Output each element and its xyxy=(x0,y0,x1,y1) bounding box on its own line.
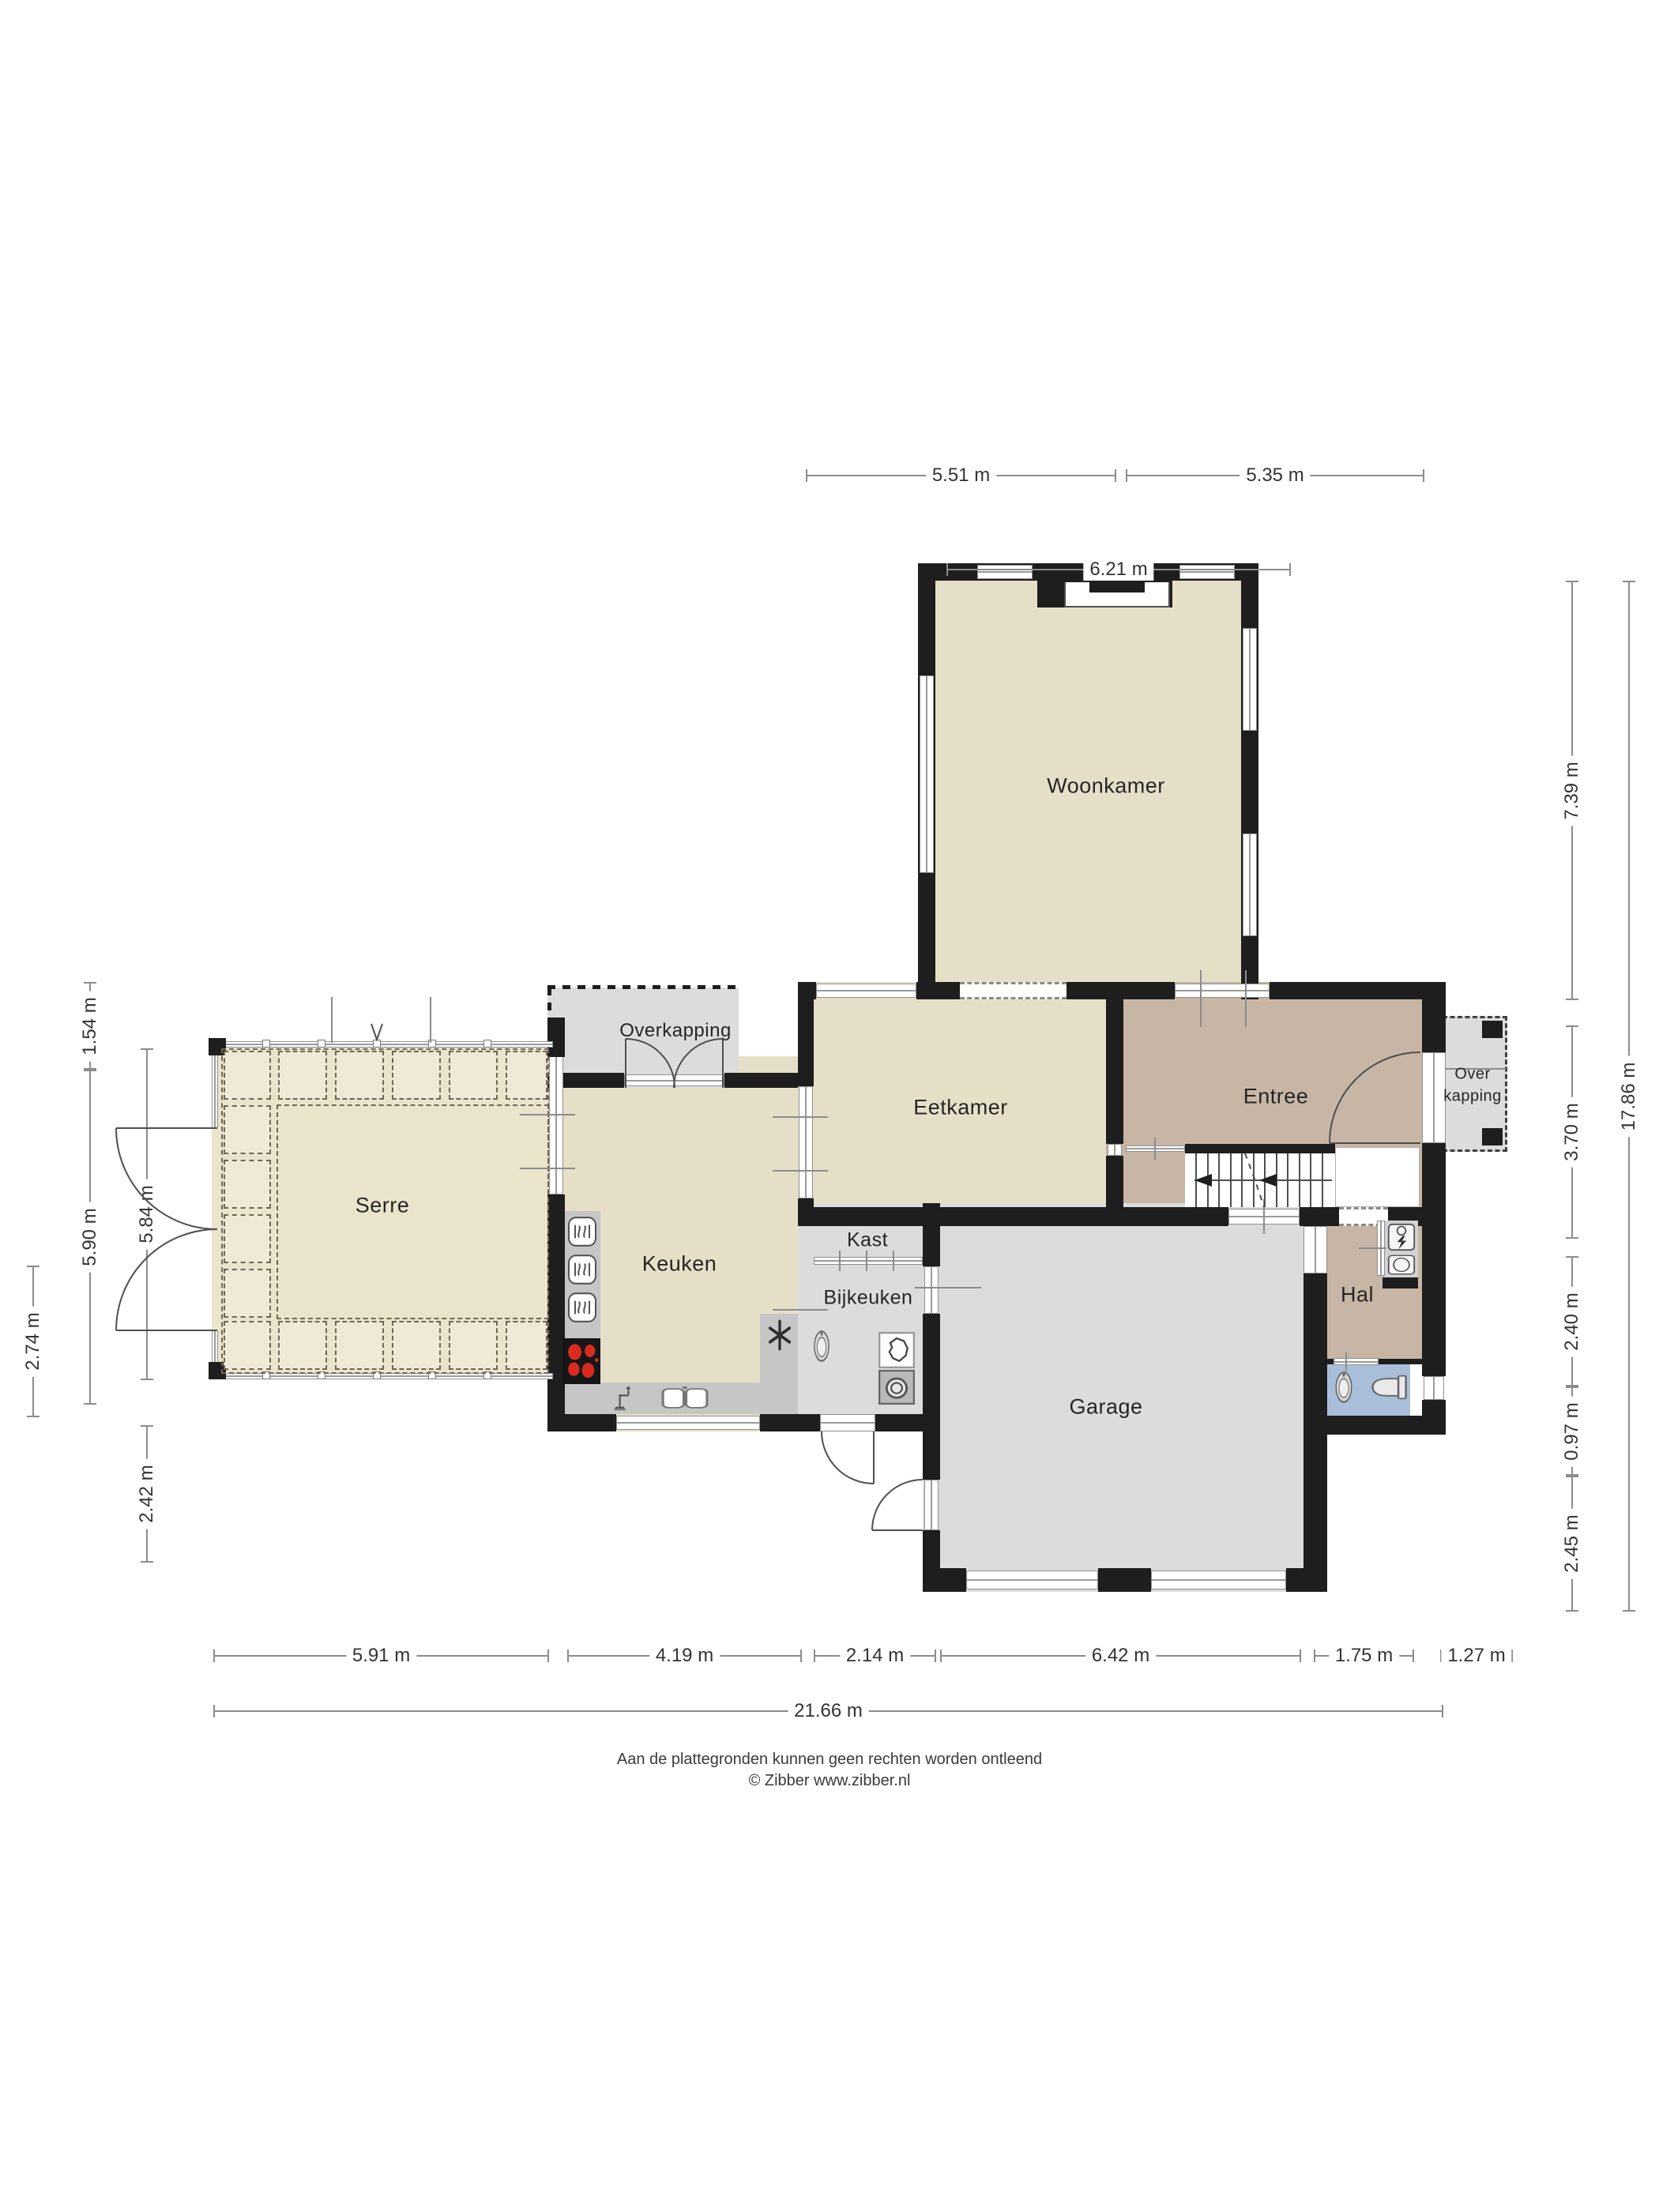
overkapping-door-left-arc xyxy=(626,1039,675,1088)
disclaimer-line: Aan de plattegronden kunnen geen rechten… xyxy=(0,1749,1659,1770)
overkapping-door-right-arc xyxy=(674,1039,723,1088)
bijkeuken-door-arc xyxy=(822,1431,874,1484)
serre-door-top-arc xyxy=(116,1128,217,1229)
serre-v-mark xyxy=(371,1024,382,1040)
stair-arrow-1 xyxy=(1194,1174,1212,1187)
copyright-line: © Zibber www.zibber.nl xyxy=(0,1770,1659,1792)
serre-door-bottom-arc xyxy=(116,1229,217,1330)
disclaimer: Aan de plattegronden kunnen geen rechten… xyxy=(0,1749,1659,1792)
stair-arrow-2 xyxy=(1259,1174,1277,1187)
doors-and-stairs-overlay xyxy=(0,0,1659,2212)
garage-door-arc xyxy=(872,1480,923,1530)
front-door-arc xyxy=(1330,1052,1420,1143)
floorplan: WoonkamerEetkamerEntreeSerreKeukenKastBi… xyxy=(0,0,1659,2212)
